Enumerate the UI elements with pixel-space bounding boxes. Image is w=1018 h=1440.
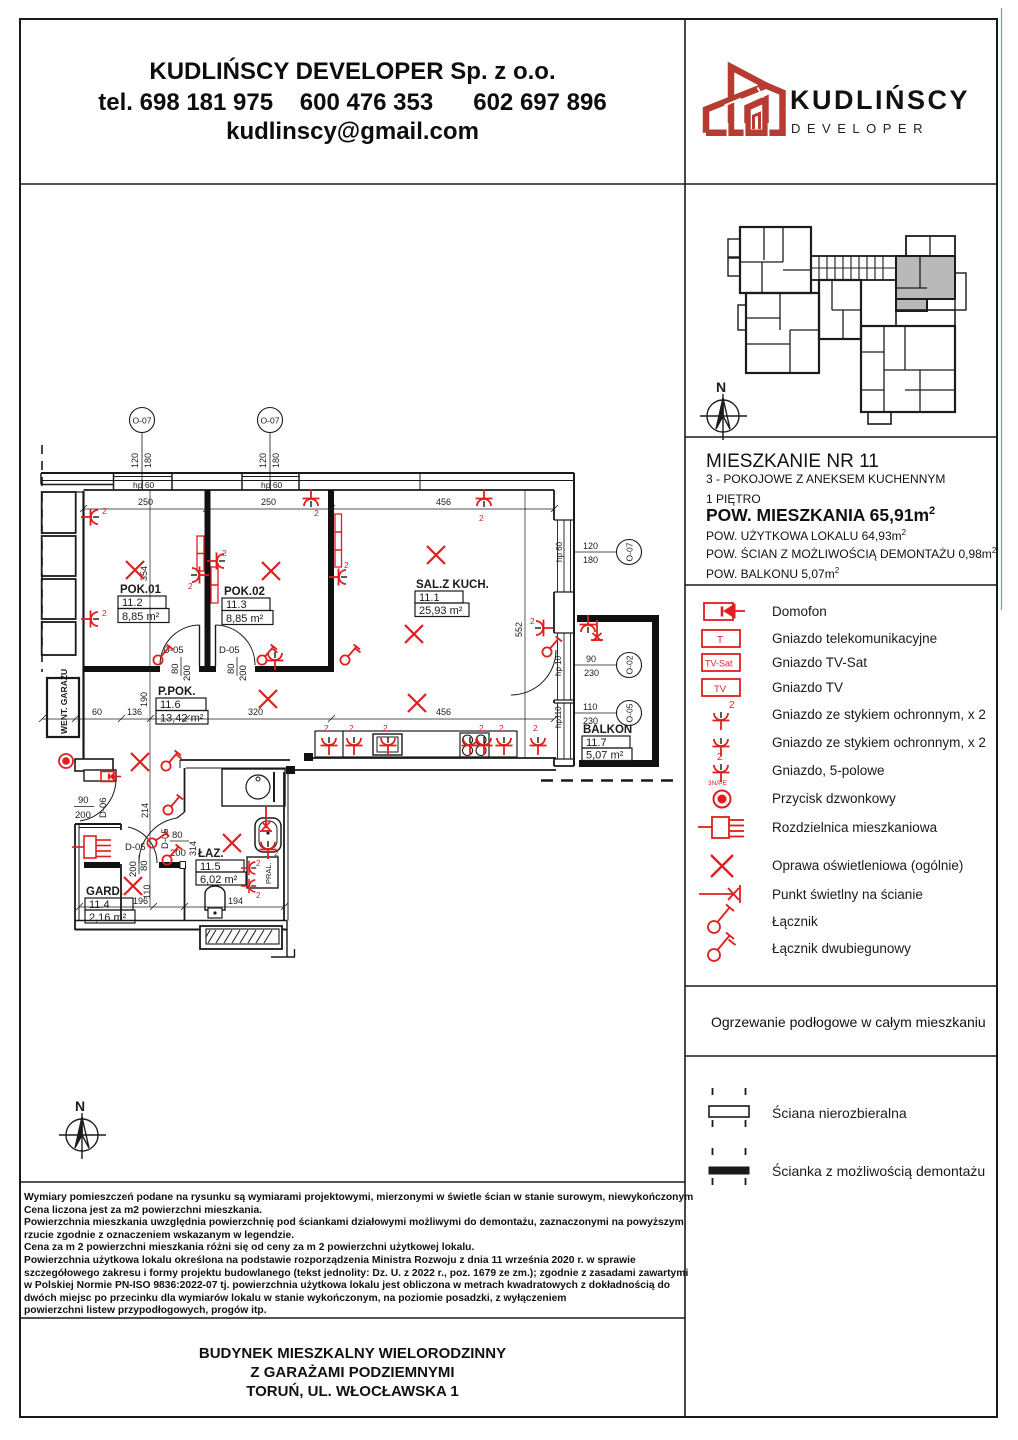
svg-text:11.3: 11.3 [226,599,247,611]
svg-text:2: 2 [256,891,261,900]
svg-text:136: 136 [127,707,142,717]
svg-text:13,42 m²: 13,42 m² [160,713,204,725]
svg-text:2: 2 [274,849,279,858]
svg-text:250: 250 [138,497,153,507]
svg-text:90: 90 [586,654,596,664]
svg-text:80: 80 [170,663,181,674]
svg-text:180: 180 [583,555,598,565]
svg-text:60: 60 [92,707,102,717]
svg-text:hp 60: hp 60 [555,541,564,562]
svg-text:T: T [717,635,723,646]
svg-text:3N/PE: 3N/PE [708,780,727,787]
svg-text:D-06: D-06 [98,797,109,818]
svg-text:O-07: O-07 [625,542,635,561]
svg-text:190: 190 [139,692,149,707]
svg-text:2: 2 [717,752,723,763]
svg-text:80: 80 [172,830,183,841]
svg-text:2: 2 [533,723,538,733]
svg-text:120: 120 [583,541,598,551]
svg-text:2: 2 [324,723,329,733]
svg-text:O-02: O-02 [625,655,635,674]
svg-text:2: 2 [479,513,484,523]
svg-text:194: 194 [228,896,243,906]
svg-text:2: 2 [530,616,535,626]
svg-text:2: 2 [479,723,484,733]
svg-text:11.6: 11.6 [160,699,181,711]
svg-text:110: 110 [142,885,152,899]
svg-text:2: 2 [256,859,261,868]
svg-text:250: 250 [261,497,276,507]
svg-text:314: 314 [188,841,198,856]
svg-text:O-05: O-05 [625,703,635,722]
svg-text:O-07: O-07 [261,416,280,426]
svg-text:8,85 m²: 8,85 m² [226,613,264,625]
svg-text:hp 10: hp 10 [554,655,563,676]
svg-text:hp110: hp110 [554,706,563,728]
svg-text:80: 80 [226,663,237,674]
svg-text:120: 120 [130,453,140,468]
svg-text:2: 2 [344,560,349,570]
svg-text:WENT. GARAŻU: WENT. GARAŻU [59,669,69,734]
svg-text:D-05: D-05 [125,842,146,853]
svg-text:11.7: 11.7 [586,737,607,749]
svg-text:hp 60: hp 60 [261,480,283,490]
svg-text:N: N [75,1098,85,1114]
svg-text:214: 214 [140,803,150,818]
svg-text:2: 2 [102,608,107,618]
svg-text:320: 320 [248,707,263,717]
svg-text:110: 110 [583,702,597,712]
svg-text:6,02 m²: 6,02 m² [200,874,238,886]
svg-text:180: 180 [143,453,153,468]
svg-text:TV-Sat: TV-Sat [705,659,733,669]
svg-text:O-07: O-07 [133,416,152,426]
svg-text:11.5: 11.5 [200,861,221,873]
svg-text:P.POK.: P.POK. [158,686,196,698]
svg-text:GARD.: GARD. [86,886,123,898]
svg-text:2: 2 [222,548,227,558]
svg-text:2: 2 [383,723,388,733]
svg-text:2: 2 [349,723,354,733]
svg-text:80: 80 [139,860,150,871]
svg-text:2,16 m²: 2,16 m² [89,912,127,924]
svg-text:230: 230 [584,668,599,678]
svg-text:8,85 m²: 8,85 m² [122,611,160,623]
svg-text:11.1: 11.1 [419,592,440,604]
svg-text:2: 2 [499,723,504,733]
svg-text:POK.01: POK.01 [120,584,162,596]
svg-text:D-05: D-05 [219,645,240,656]
svg-text:11.4: 11.4 [89,899,110,911]
svg-text:456: 456 [436,707,451,717]
svg-text:SAL.Z KUCH.: SAL.Z KUCH. [416,579,489,591]
svg-text:hp 60: hp 60 [133,480,155,490]
svg-text:5,07 m²: 5,07 m² [586,750,624,762]
svg-text:200: 200 [75,810,91,821]
svg-text:N: N [716,379,726,395]
svg-text:2: 2 [314,508,319,518]
svg-text:120: 120 [258,453,268,468]
svg-text:200: 200 [128,861,139,877]
svg-text:90: 90 [78,795,89,806]
svg-text:25,93 m²: 25,93 m² [419,605,463,617]
svg-text:POK.02: POK.02 [224,586,265,598]
svg-text:2: 2 [102,506,107,516]
svg-text:2: 2 [729,700,735,711]
svg-text:552: 552 [514,622,524,637]
svg-text:PRAL.: PRAL. [264,862,273,884]
svg-text:2: 2 [188,581,193,591]
svg-text:TV: TV [714,684,727,695]
svg-text:ŁAZ.: ŁAZ. [198,848,224,860]
svg-text:11.2: 11.2 [122,597,143,609]
svg-text:200: 200 [182,665,193,681]
svg-text:456: 456 [436,497,451,507]
svg-text:180: 180 [271,453,281,468]
svg-text:200: 200 [238,665,249,681]
svg-text:BALKON: BALKON [583,724,632,736]
